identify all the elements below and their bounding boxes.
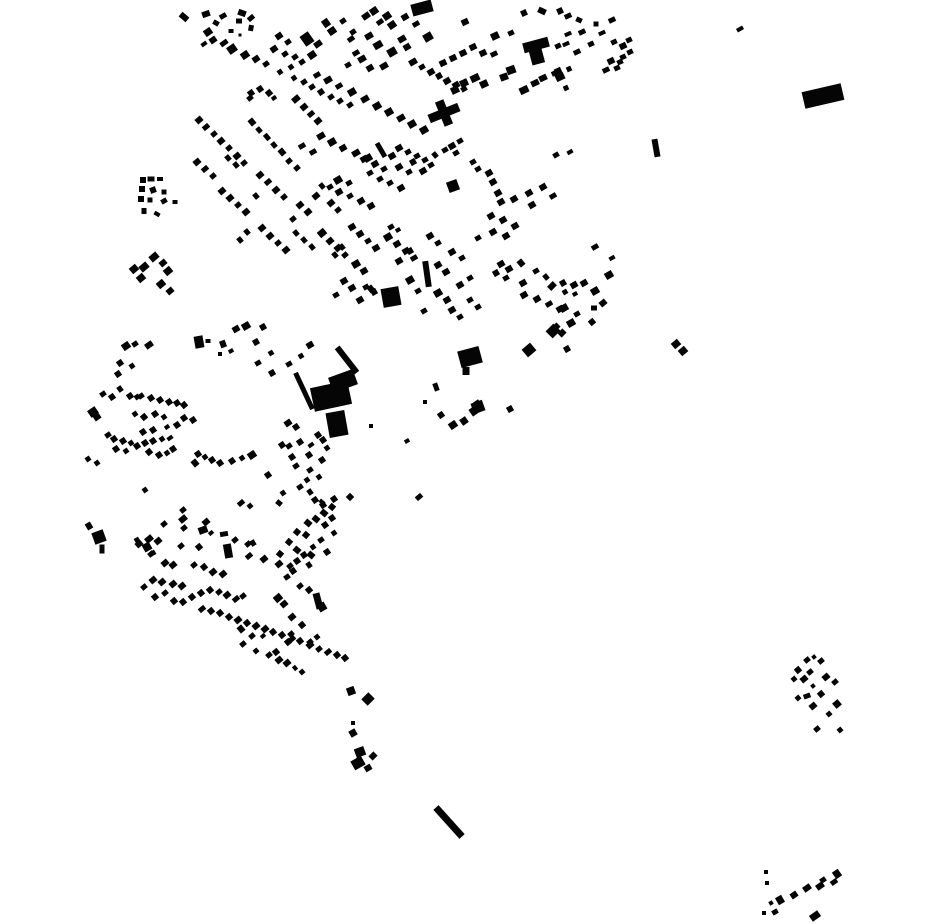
building-footprint <box>300 78 308 86</box>
building-footprint <box>212 19 220 26</box>
building-footprint <box>144 340 154 350</box>
building-footprint <box>313 71 322 79</box>
building-footprint <box>317 88 325 96</box>
building-footprint <box>236 19 242 24</box>
building-footprint <box>282 658 291 667</box>
building-footprint <box>308 243 316 251</box>
building-footprint <box>254 359 262 366</box>
building-footprint <box>518 85 529 95</box>
building-footprint <box>298 142 307 150</box>
building-footprint <box>415 493 424 501</box>
building-footprint <box>219 340 227 349</box>
building-footprint <box>292 665 298 671</box>
building-footprint <box>299 102 308 111</box>
building-footprint <box>201 10 211 18</box>
building-footprint <box>790 675 797 682</box>
building-footprint <box>538 183 547 192</box>
building-footprint <box>479 79 489 89</box>
building-footprint <box>99 390 107 398</box>
building-footprint <box>330 495 338 503</box>
building-footprint <box>281 50 289 58</box>
building-footprint <box>153 211 160 217</box>
building-footprint <box>251 621 260 630</box>
building-footprint <box>140 177 146 183</box>
building-footprint <box>190 458 199 467</box>
building-footprint <box>348 728 358 738</box>
building-footprint <box>433 805 464 839</box>
building-footprint <box>305 341 314 350</box>
building-footprint <box>194 335 205 348</box>
building-footprint <box>202 454 209 461</box>
building-footprint <box>442 77 451 86</box>
building-footprint <box>671 339 682 350</box>
building-footprint <box>527 201 536 210</box>
building-footprint <box>149 186 157 194</box>
building-footprint <box>110 435 118 443</box>
building-footprint <box>298 621 306 629</box>
building-footprint <box>328 514 336 522</box>
building-footprint <box>85 456 92 463</box>
building-footprint <box>332 291 340 298</box>
building-footprint <box>288 64 295 71</box>
building-footprint <box>366 202 375 211</box>
building-footprint <box>164 450 171 457</box>
building-footprint <box>318 456 326 464</box>
building-footprint <box>223 543 233 558</box>
building-footprint <box>321 18 331 29</box>
building-footprint <box>397 34 407 43</box>
building-footprint <box>159 436 166 443</box>
building-footprint <box>260 633 266 639</box>
building-footprint <box>559 279 567 287</box>
building-footprint <box>225 193 234 202</box>
building-footprint <box>422 31 434 42</box>
building-footprint <box>226 43 238 55</box>
building-footprint <box>573 310 581 317</box>
building-footprint <box>608 16 616 23</box>
building-footprint <box>811 654 817 660</box>
building-footprint <box>366 169 374 176</box>
building-footprint <box>162 190 167 195</box>
building-footprint <box>365 64 374 73</box>
building-footprint <box>562 289 569 296</box>
building-footprint <box>239 34 242 37</box>
building-footprint <box>817 690 825 698</box>
building-footprint <box>256 85 264 93</box>
building-footprint <box>498 216 507 225</box>
building-footprint <box>598 30 606 37</box>
building-footprint <box>490 50 498 57</box>
building-footprint <box>484 169 493 178</box>
building-footprint <box>591 243 600 251</box>
building-footprint <box>802 83 845 109</box>
building-footprint <box>247 14 256 22</box>
building-footprint <box>437 411 445 419</box>
building-footprint <box>324 445 331 452</box>
building-footprint <box>510 222 519 231</box>
building-footprint <box>341 654 349 662</box>
building-footprint <box>325 236 334 245</box>
building-footprint <box>298 668 305 675</box>
building-footprint <box>156 396 164 404</box>
building-footprint <box>248 632 256 640</box>
building-footprint <box>197 589 205 597</box>
building-footprint <box>552 151 560 158</box>
building-footprint <box>392 240 401 249</box>
building-footprint <box>369 6 380 16</box>
building-footprint <box>379 61 389 70</box>
building-footprint <box>386 46 398 57</box>
building-footprint <box>369 424 373 428</box>
building-footprint <box>195 543 203 551</box>
building-footprint <box>291 75 298 82</box>
building-footprint <box>587 40 595 47</box>
building-footprint <box>210 130 218 138</box>
building-footprint <box>208 36 217 45</box>
building-footprint <box>243 228 251 236</box>
building-footprint <box>160 520 168 528</box>
building-footprint <box>499 72 509 81</box>
building-footprint <box>271 95 277 101</box>
building-footprint <box>768 900 773 905</box>
building-footprint <box>119 437 127 445</box>
building-footprint <box>108 393 116 401</box>
building-footprint <box>283 419 292 428</box>
building-footprint <box>260 624 269 633</box>
building-footprint <box>359 267 368 276</box>
building-footprint <box>338 144 347 153</box>
building-footprint <box>252 192 260 200</box>
building-footprint <box>331 530 338 537</box>
building-footprint <box>280 490 287 497</box>
building-footprint <box>496 260 505 269</box>
building-footprint <box>794 666 802 674</box>
building-footprint <box>292 423 300 431</box>
building-footprint <box>129 264 140 275</box>
building-footprint <box>474 234 482 241</box>
building-footprint <box>830 878 839 886</box>
building-footprint <box>305 561 313 569</box>
building-footprint <box>202 123 211 131</box>
building-footprint <box>232 595 241 603</box>
building-footprint <box>537 7 547 16</box>
building-footprint <box>474 303 482 310</box>
building-footprint <box>431 151 439 159</box>
building-footprint <box>821 672 830 681</box>
building-footprint <box>372 101 382 111</box>
building-footprint <box>324 648 333 656</box>
building-footprint <box>170 597 178 605</box>
building-footprint <box>257 223 266 232</box>
building-footprint <box>457 346 483 368</box>
building-footprint <box>309 148 318 156</box>
building-footprint <box>216 136 225 145</box>
building-footprint <box>264 471 272 479</box>
building-footprint <box>285 360 293 367</box>
building-footprint <box>190 561 198 569</box>
building-footprint <box>160 197 168 204</box>
building-footprint <box>425 232 434 241</box>
building-footprint <box>432 382 439 391</box>
building-footprint <box>325 410 348 438</box>
building-footprint <box>455 281 464 290</box>
building-footprint <box>346 493 354 501</box>
building-footprint <box>280 193 288 201</box>
building-footprint <box>803 656 811 664</box>
building-footprint <box>164 424 170 430</box>
building-footprint <box>151 593 159 601</box>
building-footprint <box>265 231 274 240</box>
building-footprint <box>255 170 264 179</box>
building-footprint <box>142 542 153 553</box>
building-footprint <box>142 487 149 494</box>
building-footprint <box>248 25 254 32</box>
building-footprint <box>347 35 356 43</box>
building-footprint <box>275 499 283 507</box>
building-footprint <box>331 251 339 259</box>
building-footprint <box>138 261 149 272</box>
building-footprint <box>285 442 293 450</box>
building-footprint <box>276 550 284 558</box>
building-footprint <box>506 405 514 413</box>
building-footprint <box>380 286 401 308</box>
building-footprint <box>306 550 315 559</box>
building-footprint <box>569 281 578 290</box>
building-footprint <box>163 266 174 277</box>
building-footprint <box>273 593 284 604</box>
building-footprint <box>270 141 278 149</box>
building-footprint <box>165 286 174 295</box>
building-footprint <box>268 350 275 357</box>
building-footprint <box>458 254 466 261</box>
building-footprint <box>459 49 468 57</box>
building-footprint <box>271 185 280 194</box>
building-footprint <box>607 57 616 65</box>
building-footprint <box>501 232 510 241</box>
building-footprint <box>651 139 660 158</box>
building-footprint <box>836 726 843 733</box>
building-footprint <box>157 177 163 181</box>
building-footprint <box>360 94 370 103</box>
building-footprint <box>492 269 500 277</box>
building-footprint <box>265 89 273 97</box>
building-footprint <box>466 274 474 281</box>
building-footprint <box>771 908 779 915</box>
building-footprint <box>239 455 246 462</box>
building-footprint <box>100 545 105 554</box>
building-footprint <box>274 32 283 41</box>
building-footprint <box>268 369 276 377</box>
building-footprint <box>262 60 270 68</box>
building-footprint <box>368 751 377 760</box>
building-footprint <box>241 321 251 331</box>
building-footprint <box>126 392 134 400</box>
building-footprint <box>274 559 283 568</box>
building-footprint <box>594 22 599 27</box>
building-footprint <box>179 506 187 514</box>
building-footprint <box>298 353 305 360</box>
building-footprint <box>376 175 384 182</box>
building-footprint <box>274 655 283 664</box>
building-footprint <box>813 725 821 733</box>
building-footprint <box>496 198 505 207</box>
building-footprint <box>396 184 405 193</box>
building-footprint <box>94 460 101 467</box>
building-footprint <box>296 438 304 446</box>
building-footprint <box>433 261 442 270</box>
building-footprint <box>259 554 268 563</box>
building-footprint <box>307 110 316 118</box>
building-footprint <box>520 9 528 17</box>
building-footprint <box>237 9 247 17</box>
building-footprint <box>387 20 398 30</box>
building-footprint <box>319 508 328 517</box>
building-footprint <box>200 563 208 571</box>
building-footprint <box>419 125 429 135</box>
building-footprint <box>386 179 394 186</box>
building-footprint <box>252 338 260 346</box>
building-footprint <box>317 536 325 544</box>
building-footprint <box>149 437 157 445</box>
building-footprint <box>132 411 139 418</box>
building-footprint <box>502 274 510 281</box>
building-footprint <box>209 172 217 180</box>
building-footprint <box>91 529 106 544</box>
building-footprint <box>206 586 214 594</box>
building-footprint <box>590 286 600 296</box>
building-footprint <box>421 156 429 163</box>
building-footprint <box>228 348 234 354</box>
building-footprint <box>522 343 537 358</box>
building-footprint <box>269 628 277 636</box>
building-footprint <box>274 239 282 247</box>
building-footprint <box>255 126 263 134</box>
building-footprint <box>345 179 353 186</box>
building-footprint <box>370 160 379 169</box>
building-footprint <box>236 624 245 633</box>
building-footprint <box>327 93 335 101</box>
building-footprint <box>538 74 548 83</box>
building-footprint <box>292 229 300 237</box>
building-footprint <box>136 273 147 284</box>
building-footprint <box>619 42 628 50</box>
building-footprint <box>291 53 299 61</box>
map-root <box>0 0 930 924</box>
building-footprint <box>219 12 228 20</box>
building-footprint <box>308 83 316 91</box>
building-footprint <box>277 69 284 76</box>
building-footprint <box>247 117 256 126</box>
building-footprint <box>339 17 347 25</box>
building-footprint <box>532 267 540 274</box>
building-footprint <box>604 270 614 280</box>
building-footprint <box>422 261 432 288</box>
building-footprint <box>347 87 357 97</box>
building-footprint <box>222 590 231 599</box>
building-footprint <box>466 296 474 303</box>
building-footprint <box>479 49 488 57</box>
building-footprint <box>775 895 785 905</box>
building-footprint <box>563 85 570 92</box>
building-footprint <box>405 168 413 175</box>
building-footprint <box>608 255 615 261</box>
building-footprint <box>303 207 312 216</box>
building-footprint <box>446 179 460 193</box>
building-footprint <box>563 345 571 353</box>
building-footprint <box>825 710 832 717</box>
building-footprint <box>395 227 401 233</box>
building-footprint <box>410 0 433 17</box>
building-footprint <box>817 657 825 665</box>
building-footprint <box>456 137 464 144</box>
building-footprint <box>166 435 173 442</box>
building-footprint <box>277 147 286 156</box>
building-footprint <box>278 631 286 639</box>
building-footprint <box>678 346 689 357</box>
building-footprint <box>426 68 435 77</box>
map-canvas <box>0 0 930 924</box>
building-footprint <box>311 191 320 200</box>
building-footprint <box>435 72 443 80</box>
building-footprint <box>394 257 403 266</box>
building-footprint <box>602 66 610 73</box>
building-footprint <box>165 398 173 406</box>
building-footprint <box>334 188 343 197</box>
building-footprint <box>335 346 359 375</box>
building-footprint <box>456 313 464 320</box>
building-footprint <box>287 612 296 621</box>
building-footprint <box>327 137 337 147</box>
building-footprint <box>336 97 344 105</box>
building-footprint <box>168 579 177 588</box>
building-footprint <box>371 244 380 253</box>
building-footprint <box>177 581 186 590</box>
building-footprint <box>764 870 768 874</box>
building-footprint <box>806 668 814 676</box>
building-footprint <box>518 279 527 288</box>
building-footprint <box>794 694 801 701</box>
building-footprint <box>396 113 406 122</box>
building-footprint <box>530 79 540 88</box>
building-footprint <box>292 545 301 554</box>
building-footprint <box>231 536 239 544</box>
building-footprint <box>509 195 518 204</box>
building-footprint <box>434 239 442 246</box>
building-footprint <box>566 66 573 73</box>
building-footprint <box>160 558 169 567</box>
building-footprint <box>218 569 227 578</box>
building-footprint <box>180 524 188 532</box>
building-footprint <box>361 692 374 705</box>
building-footprint <box>240 159 248 167</box>
building-footprint <box>155 451 163 459</box>
building-footprint <box>442 296 451 305</box>
building-footprint <box>579 279 588 288</box>
building-footprint <box>346 192 354 199</box>
building-footprint <box>303 518 312 527</box>
building-footprint <box>149 426 157 434</box>
building-footprint <box>459 78 469 88</box>
building-footprint <box>334 206 342 214</box>
building-footprint <box>341 251 349 259</box>
building-footprint <box>355 296 364 305</box>
building-footprint <box>168 560 177 569</box>
building-footprint <box>306 466 314 474</box>
building-footprint <box>293 164 301 172</box>
building-footprint <box>288 453 296 461</box>
building-footprint <box>241 207 250 216</box>
building-footprint <box>516 258 525 267</box>
